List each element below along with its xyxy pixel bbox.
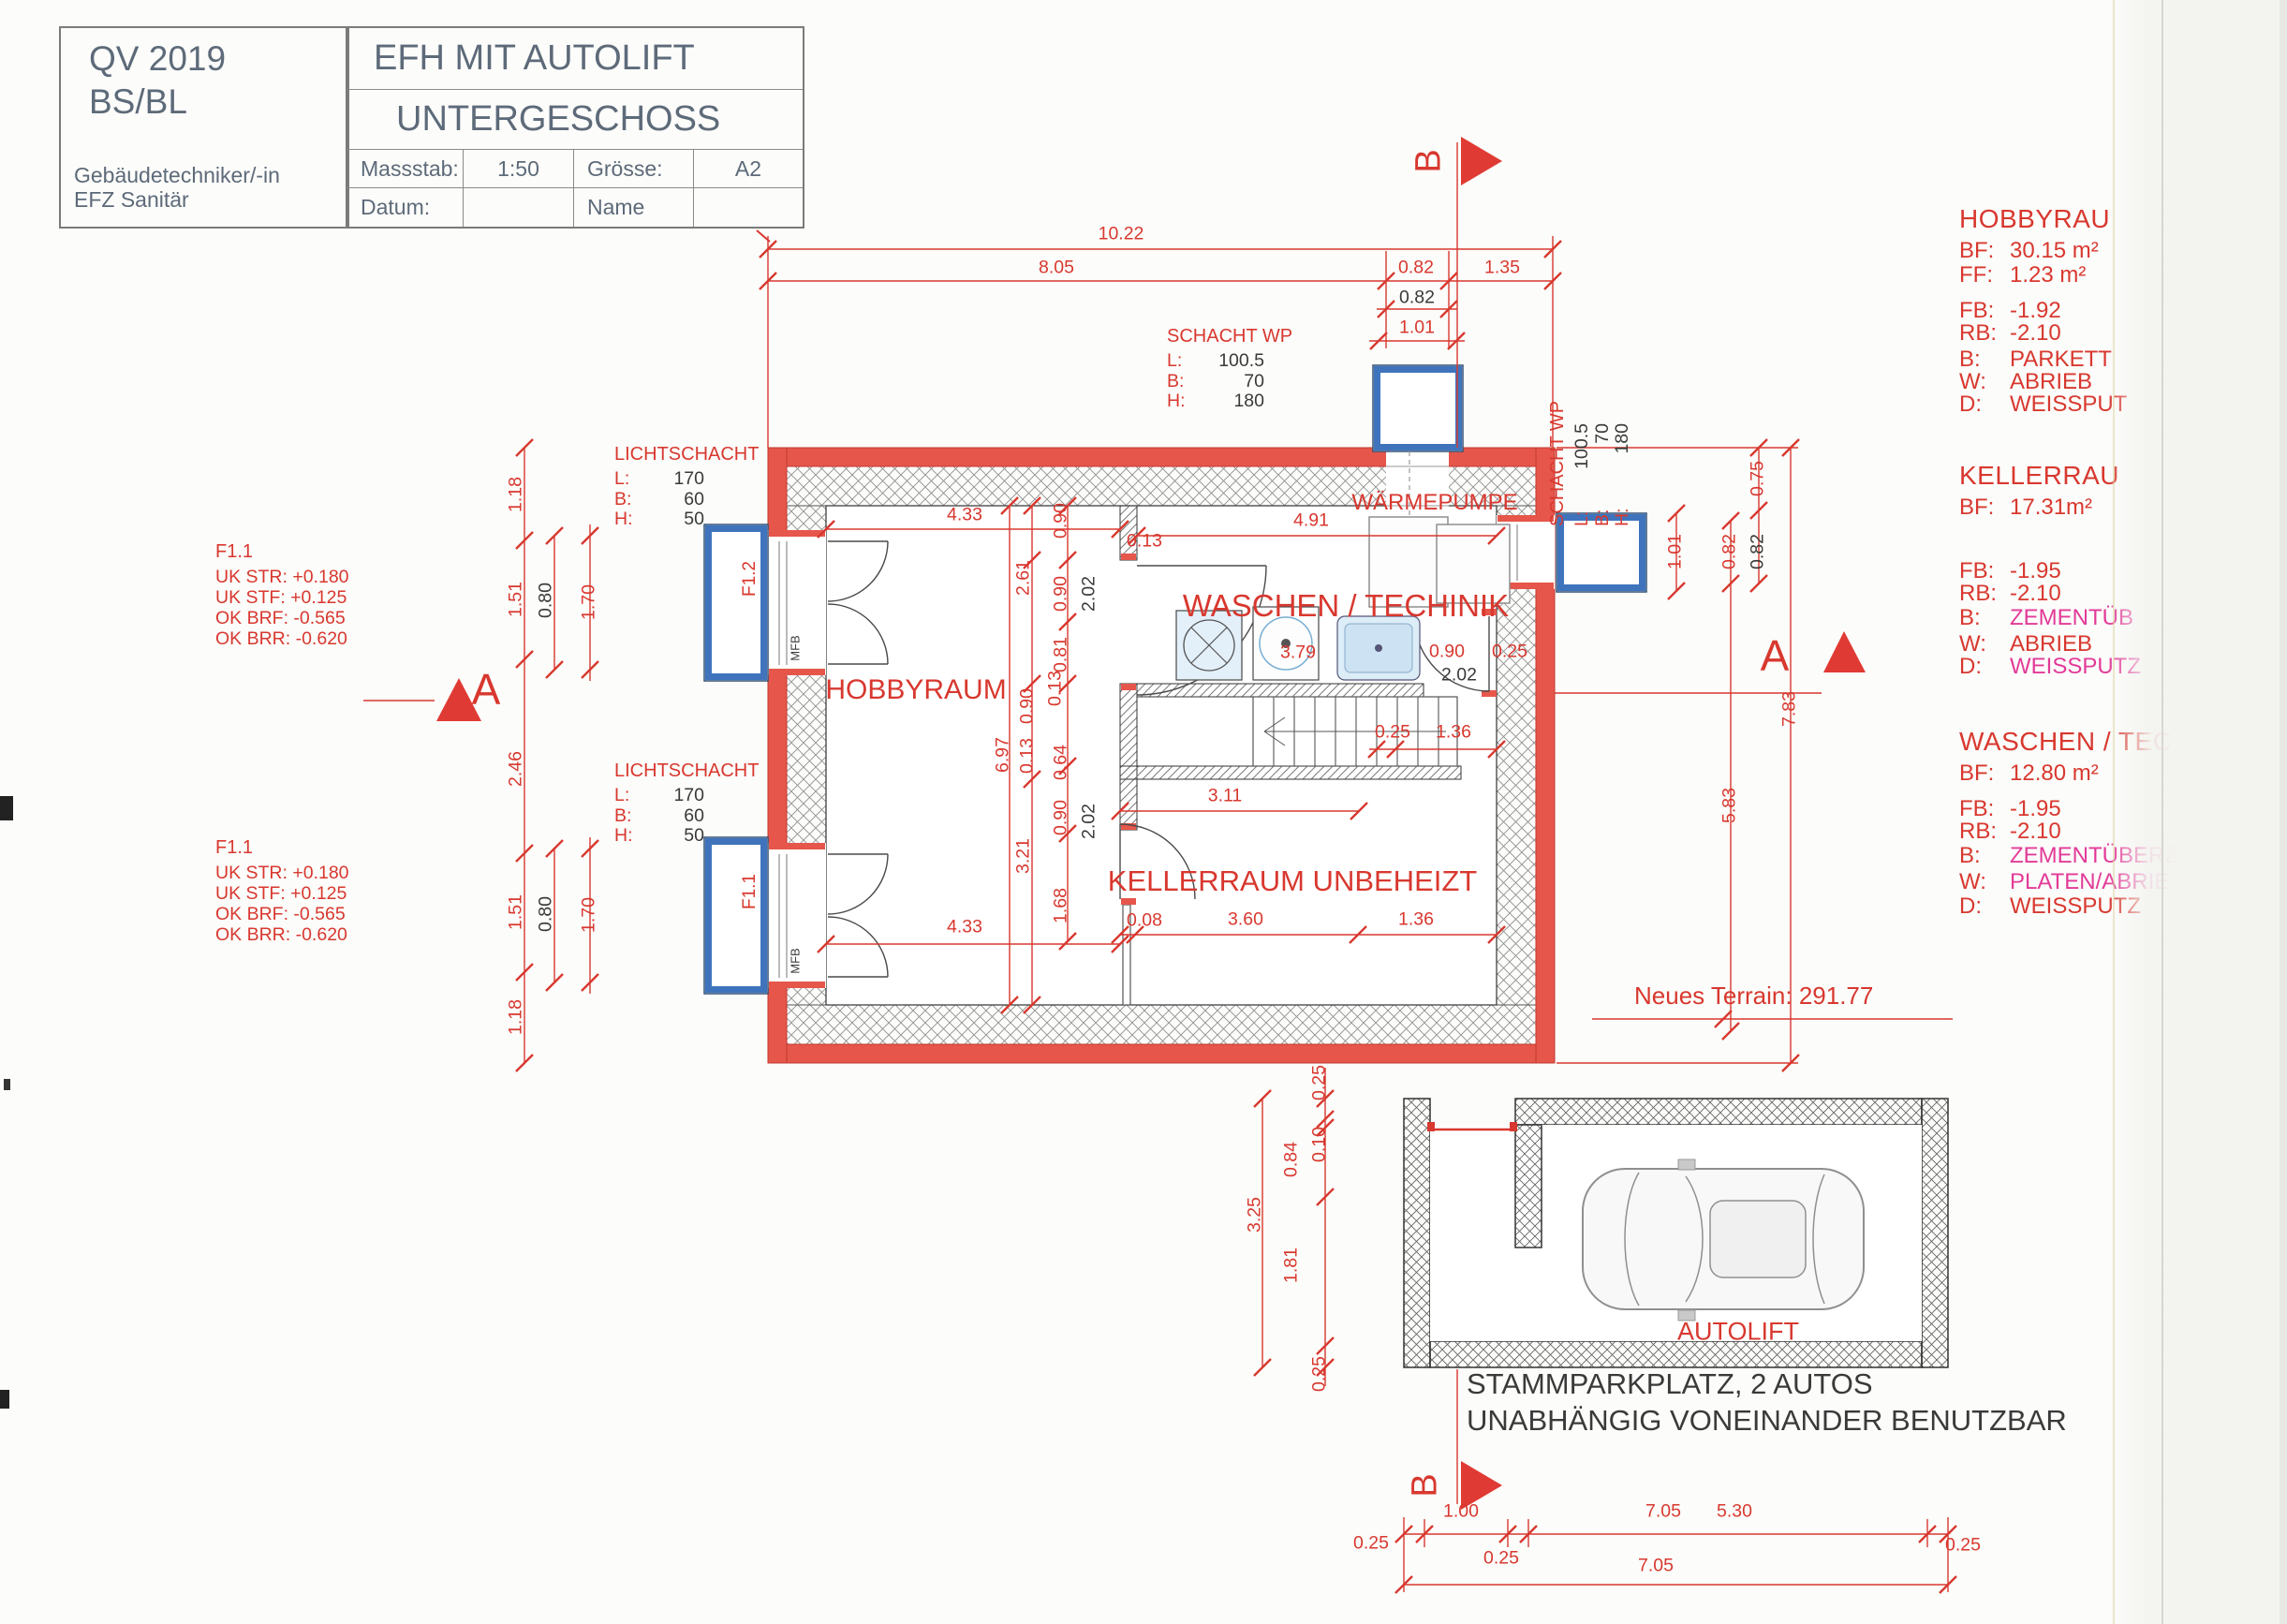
dimension-label: 0.90 <box>1051 800 1072 835</box>
annotation-row: L:170 <box>614 469 704 490</box>
annotation-row: H:50 <box>614 509 704 530</box>
room-spec-row: RB:-2.10 <box>1959 581 2061 607</box>
room-spec-row: D:WEISSPUT <box>1959 391 2127 418</box>
dimension-label: 0.25 <box>1353 1533 1389 1555</box>
annotation-block-lichtschacht: LICHTSCHACHTL:170B:60H:50 <box>614 444 755 530</box>
dimension-label: 3.60 <box>1228 909 1263 931</box>
dimension-label: 0.90 <box>1051 503 1072 539</box>
room-label-waermepumpe: WÄRMEPUMPE <box>1351 490 1517 516</box>
dimension-label: 2.02 <box>1079 576 1100 612</box>
room-spec-row: RB:-2.10 <box>1959 320 2061 347</box>
annotation-line: OK BRF: -0.565 <box>215 904 375 924</box>
dimension-label: 0.25 <box>1309 1356 1331 1392</box>
annotation-line: UK STF: +0.125 <box>215 587 375 608</box>
dimension-label: 1.51 <box>506 894 527 930</box>
dimension-label: 0.82 <box>1398 258 1434 279</box>
dimension-label: 2.46 <box>506 751 527 787</box>
annotation-row: L:100.5 <box>1167 351 1264 372</box>
terrain-note: Neues Terrain: 291.77 <box>1634 982 1873 1011</box>
dimension-label: 0.13 <box>1045 671 1067 706</box>
dimension-label: 1.68 <box>1051 888 1072 923</box>
dimension-label: 6.97 <box>993 737 1014 773</box>
room-spec-row: RB:-2.10 <box>1959 819 2061 845</box>
dimension-label: 1.35 <box>1484 258 1520 279</box>
room-spec-row: BF:30.15 m² <box>1959 238 2099 264</box>
dimension-label: 3.79 <box>1280 642 1316 664</box>
dimension-label: 0.82 <box>1719 534 1741 569</box>
window-label-f11: F1.1 <box>740 874 760 909</box>
annotation-block-f1-1: F1.1UK STR: +0.180UK STF: +0.125OK BRF: … <box>215 837 375 945</box>
parking-note-line1: STAMMPARKPLATZ, 2 AUTOS <box>1467 1367 1873 1401</box>
scanner-edge <box>2280 0 2287 1624</box>
dimension-label: 0.75 <box>1748 461 1769 496</box>
section-marker-a-left: A <box>472 664 501 715</box>
section-marker-a-right: A <box>1761 630 1790 681</box>
dimension-label: 0.25 <box>1483 1548 1519 1570</box>
dimension-label: 4.33 <box>947 917 982 938</box>
dimension-label: 1.18 <box>506 477 527 512</box>
dimension-label: 7.05 <box>1645 1501 1681 1523</box>
dimension-label: 1.51 <box>506 582 527 617</box>
dimension-label: 2.02 <box>1441 665 1477 687</box>
annotation-block-f1-1: F1.1UK STR: +0.180UK STF: +0.125OK BRF: … <box>215 541 375 649</box>
room-label-waschen-technik: WASCHEN / TECHINIK <box>1183 588 1509 624</box>
dimension-label: 7.05 <box>1638 1556 1674 1577</box>
annotation-row: H:180 <box>1613 423 1633 526</box>
dimension-label: 5.30 <box>1717 1501 1752 1523</box>
dimension-label: 8.05 <box>1039 258 1074 279</box>
dimension-label: 1.01 <box>1665 534 1687 569</box>
scanned-floor-plan-page: QV 2019 BS/BL Gebäudetechniker/-in EFZ S… <box>0 0 2287 1624</box>
dimension-label: 0.25 <box>1492 642 1527 663</box>
room-label-autolift: AUTOLIFT <box>1677 1318 1799 1347</box>
window-label-f12: F1.2 <box>740 561 760 597</box>
dimension-label: 3.25 <box>1245 1197 1266 1233</box>
dimension-label: 0.08 <box>1127 910 1162 932</box>
dimension-label: 0.90 <box>1429 642 1465 663</box>
dimension-label: 1.01 <box>1399 317 1435 339</box>
dimension-label: 0.84 <box>1281 1142 1303 1177</box>
dimension-label: 0.10 <box>1309 1127 1331 1162</box>
annotation-line: OK BRR: -0.620 <box>215 924 375 945</box>
annotation-line: UK STR: +0.180 <box>215 863 375 883</box>
window-label-mfb: MFB <box>789 635 803 660</box>
dimension-label: 1.00 <box>1443 1501 1479 1523</box>
dimension-label: 0.80 <box>536 583 557 618</box>
section-marker-b-top: B <box>1409 149 1450 172</box>
annotation-title: F1.1 <box>215 837 375 859</box>
section-marker-b-bottom: B <box>1406 1473 1446 1497</box>
dimension-label: 0.13 <box>1017 738 1039 774</box>
dimension-label: 1.36 <box>1436 722 1471 744</box>
parking-note-line2: UNABHÄNGIG VONEINANDER BENUTZBAR <box>1467 1404 2067 1438</box>
dimension-label: 0.13 <box>1127 531 1162 553</box>
room-label-kellerraum-unbeheizt: KELLERRAUM UNBEHEIZT <box>1108 864 1477 898</box>
annotation-title: F1.1 <box>215 541 375 563</box>
annotation-title: LICHTSCHACHT <box>614 444 755 465</box>
annotation-block-schacht-wp: SCHACHT WPL:100.5B:70H:180 <box>1167 326 1279 412</box>
dimension-label: 0.25 <box>1309 1065 1331 1100</box>
dimension-label: 0.25 <box>1945 1535 1981 1557</box>
dimension-label: 4.33 <box>947 505 982 526</box>
annotation-title: SCHACHT WP <box>1547 362 1569 526</box>
window-label-mfb: MFB <box>789 948 803 973</box>
dimension-label: 1.18 <box>506 999 527 1035</box>
annotation-line: UK STR: +0.180 <box>215 567 375 587</box>
dimension-label: 0.25 <box>1375 722 1410 744</box>
annotation-row: L:100.5 <box>1572 423 1593 526</box>
room-label-hobbyraum: HOBBYRAUM <box>825 674 1006 706</box>
annotation-line: OK BRR: -0.620 <box>215 628 375 649</box>
annotation-row: B:60 <box>614 806 704 827</box>
dimension-label: 1.81 <box>1281 1248 1303 1283</box>
annotation-title: LICHTSCHACHT <box>614 760 755 782</box>
dimension-label: 1.36 <box>1398 909 1434 931</box>
fold-line <box>2162 0 2163 1624</box>
room-spec-row: BF:17.31m² <box>1959 495 2092 521</box>
dimension-label: 3.11 <box>1208 786 1243 807</box>
room-spec-row: BF:12.80 m² <box>1959 760 2099 787</box>
dimension-label: 0.82 <box>1399 288 1435 309</box>
dimension-label: 0.90 <box>1051 576 1072 612</box>
dimension-label: 1.70 <box>579 897 600 933</box>
dimension-label: 5.83 <box>1719 788 1741 823</box>
annotation-line: UK STF: +0.125 <box>215 883 375 904</box>
dimension-label: 0.82 <box>1748 534 1769 569</box>
page-edge-overlay <box>2107 0 2287 1624</box>
annotation-row: B:70 <box>1593 423 1614 526</box>
annotation-row: H:50 <box>614 826 704 847</box>
annotation-row: L:170 <box>614 786 704 806</box>
fold-streak <box>2113 0 2115 1624</box>
dimension-label: 0.81 <box>1051 637 1072 672</box>
annotation-labels-layer: 10.228.050.821.350.821.011.181.510.801.7… <box>0 0 2287 1624</box>
dimension-label: 0.64 <box>1051 745 1072 780</box>
annotation-row: B:70 <box>1167 372 1264 392</box>
dimension-label: 0.80 <box>536 896 557 932</box>
annotation-title: SCHACHT WP <box>1167 326 1279 347</box>
annotation-line: OK BRF: -0.565 <box>215 608 375 628</box>
annotation-block-schacht-wp: SCHACHT WPL:100.5B:70H:180 <box>1547 362 1633 526</box>
annotation-block-lichtschacht: LICHTSCHACHTL:170B:60H:50 <box>614 760 755 847</box>
dimension-label: 2.02 <box>1079 804 1100 839</box>
annotation-row: H:180 <box>1167 391 1264 412</box>
dimension-label: 2.61 <box>1013 560 1035 596</box>
annotation-row: B:60 <box>614 490 704 510</box>
dimension-label: 10.22 <box>1099 224 1144 245</box>
room-spec-row: FF:1.23 m² <box>1959 262 2086 288</box>
dimension-label: 4.91 <box>1293 510 1329 532</box>
dimension-label: 1.70 <box>579 584 600 620</box>
dimension-label: 0.90 <box>1017 688 1039 724</box>
dimension-label: 3.21 <box>1013 838 1035 874</box>
dimension-label: 7.83 <box>1779 691 1801 727</box>
